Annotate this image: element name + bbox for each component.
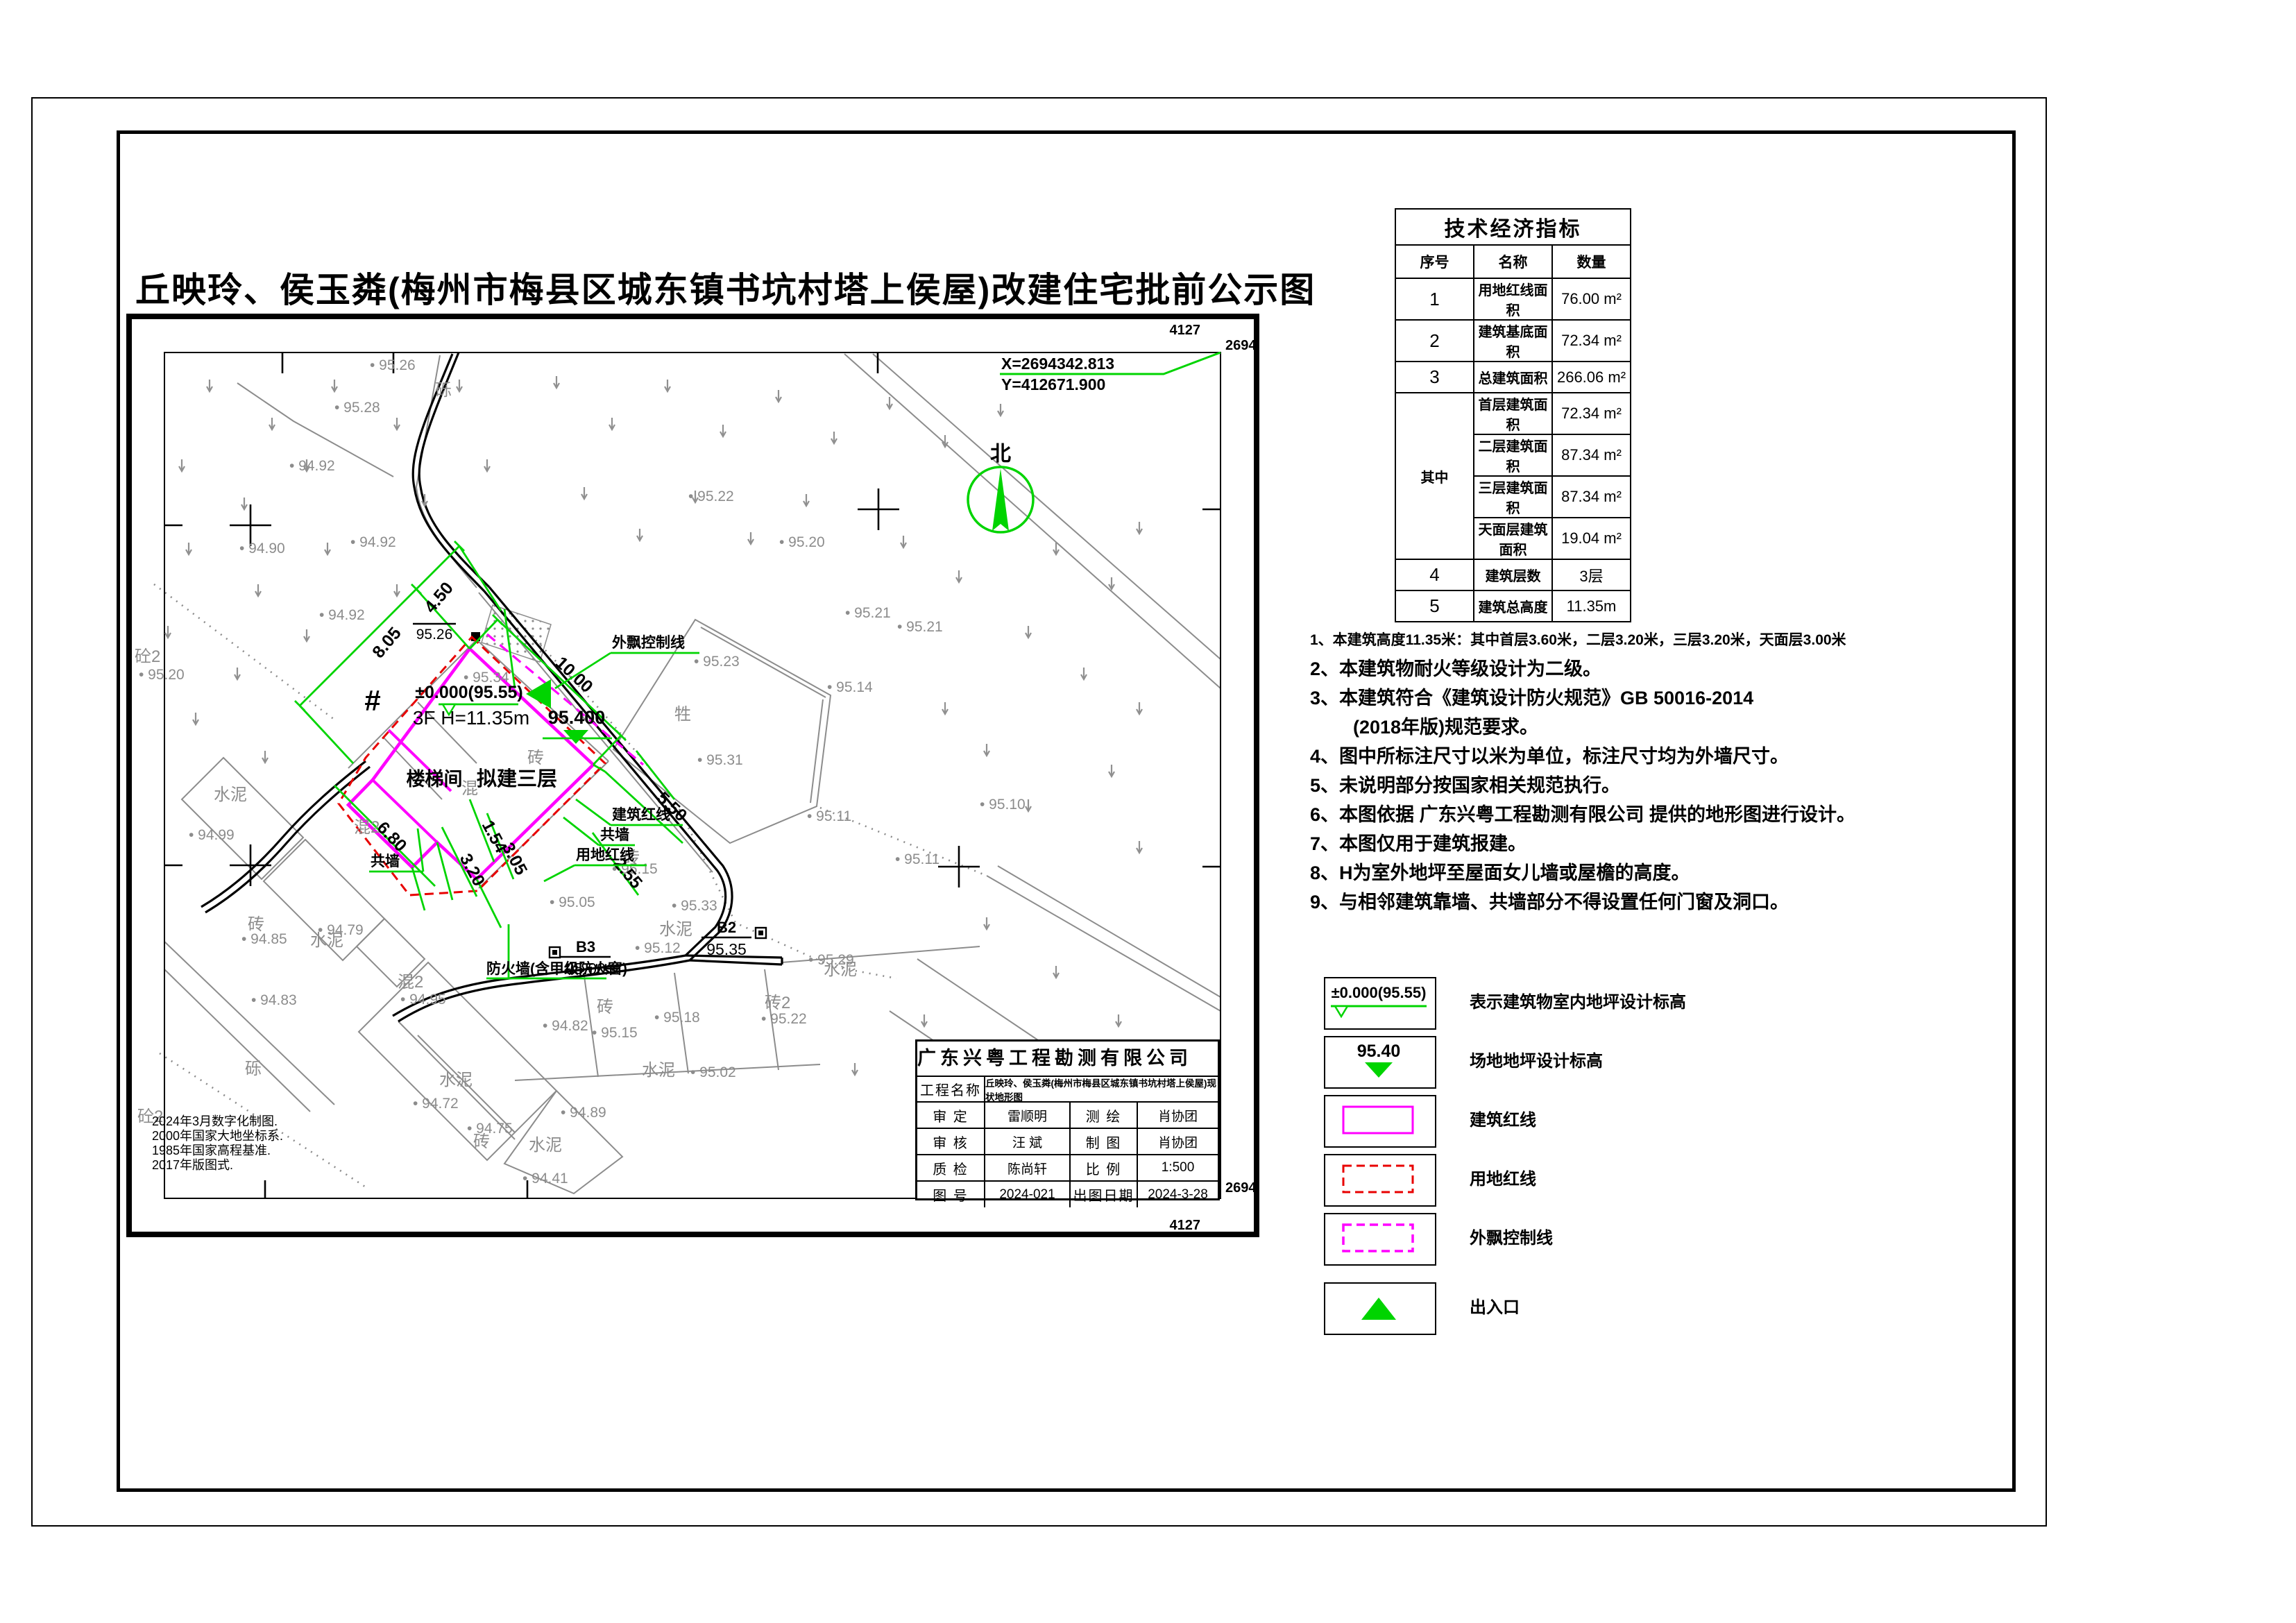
row-qty: 3层: [1552, 559, 1631, 590]
grass-symbol-icon: [921, 1014, 927, 1026]
grass-symbol-icon: [998, 404, 1003, 416]
field-label: 比 例: [1069, 1155, 1137, 1180]
field-label: 测 绘: [1069, 1103, 1137, 1128]
building-label: 拟建三层: [477, 767, 557, 790]
surface-label: 水泥: [310, 931, 343, 950]
coord-y-label: Y=412671.900: [1001, 375, 1105, 393]
grass-symbol-icon: [304, 629, 309, 641]
grass-symbol-icon: [984, 917, 989, 929]
surface-label: 水泥: [824, 960, 857, 979]
grass-symbol-icon: [942, 702, 948, 714]
row-number: 2: [1395, 320, 1474, 362]
field-value: 汪 斌: [984, 1129, 1069, 1154]
note-line: 5、未说明部分按国家相关规范执行。: [1310, 771, 1823, 800]
svg-text:±0.000(95.55): ±0.000(95.55): [1332, 984, 1427, 1001]
row-qty: 266.06 m²: [1552, 362, 1631, 393]
grass-symbol-icon: [901, 536, 906, 547]
legend-symbol-building-redline-icon: [1324, 1095, 1436, 1148]
benchmark-name: B3: [576, 938, 595, 955]
surface-label: 砖: [527, 749, 544, 767]
grass-symbol-icon: [803, 494, 809, 506]
leader-line: [418, 829, 423, 872]
indicator-table: 技术经济指标序号名称数量1用地红线面积76.00 m²2建筑基底面积72.34 …: [1395, 208, 1631, 622]
field-label: 图 号: [917, 1182, 984, 1207]
grass-symbol-icon: [1026, 626, 1031, 638]
building-label: ±0.000(95.55): [415, 683, 523, 702]
spot-elevation: • 95.15: [592, 1025, 638, 1041]
legend-label: 建筑红线: [1470, 1095, 1536, 1146]
row-qty: 87.34 m²: [1552, 476, 1631, 518]
field-value: 肖协团: [1137, 1103, 1218, 1128]
field-value: 2024-021: [984, 1182, 1069, 1207]
spot-elevation: • 95.28: [334, 400, 380, 416]
note-line: 4、图中所标注尺寸以米为单位，标注尺寸均为外墙尺寸。: [1310, 742, 1823, 771]
grass-symbol-icon: [1026, 799, 1031, 811]
row-number: 3: [1395, 362, 1474, 393]
field-label: 制 图: [1069, 1129, 1137, 1154]
benchmark-name: B2: [717, 919, 736, 936]
grass-symbol-icon: [720, 425, 726, 436]
grass-symbol-icon: [1137, 841, 1142, 853]
north-arrow-icon: 北: [968, 443, 1033, 532]
grass-symbol-icon: [852, 1063, 858, 1075]
grid-corner-label: 2694.3: [1225, 1180, 1259, 1196]
row-number: 4: [1395, 559, 1474, 590]
spot-elevation: • 95.20: [139, 667, 185, 683]
grass-symbol-icon: [193, 713, 198, 724]
group-cell: 其中: [1395, 393, 1474, 559]
building-label: 3F H=11.35m: [413, 707, 529, 729]
row-number: 5: [1395, 590, 1474, 622]
surface-label: 水泥: [214, 785, 247, 804]
spot-elevation: • 94.92: [350, 534, 396, 550]
survey-note-line: 1985年国家高程基准.: [152, 1144, 271, 1157]
coord-x-label: X=2694342.813: [1001, 355, 1114, 373]
legend-label: 场地地坪设计标高: [1470, 1036, 1603, 1087]
col-header: 数量: [1552, 245, 1631, 278]
grass-symbol-icon: [394, 418, 400, 430]
legend-symbol-overhang-line-icon: [1324, 1213, 1436, 1266]
row-name: 首层建筑面积: [1474, 393, 1552, 434]
note-line: 7、本图仅用于建筑报建。: [1310, 829, 1823, 858]
title-block-row: 图 号2024-021出图日期2024-3-28: [917, 1180, 1218, 1207]
grid-corner-label: 2694.3: [1225, 338, 1259, 353]
leader-line: [576, 799, 611, 825]
indicator-row: 2建筑基底面积72.34 m²: [1395, 320, 1631, 362]
spot-elevation: • 94.99: [189, 827, 235, 843]
leader-label: 外飘控制线: [612, 634, 685, 651]
grass-symbol-icon: [484, 459, 490, 471]
grass-symbol-icon: [325, 543, 330, 554]
spot-elevation: • 94.92: [289, 458, 335, 474]
field-value: 2024-3-28: [1137, 1182, 1218, 1207]
surface-label: 砾: [245, 1060, 262, 1078]
grass-symbol-icon: [1081, 668, 1087, 679]
field-label: 审 定: [917, 1103, 984, 1128]
spot-elevation: • 95.26: [370, 357, 416, 373]
spot-elevation: • 95.10: [980, 797, 1026, 813]
row-name: 总建筑面积: [1474, 362, 1552, 393]
surface-label: 混2: [398, 973, 423, 992]
building-label: #: [364, 684, 380, 717]
note-line: 1、本建筑高度11.35米：其中首层3.60米，二层3.20米，三层3.20米，…: [1310, 627, 1823, 654]
field-label: 审 核: [917, 1129, 984, 1154]
page: { "title": "丘映玲、侯玉粦(梅州市梅县区城东镇书坑村塔上侯屋)改建住…: [0, 0, 2296, 1623]
grass-symbol-icon: [186, 543, 192, 554]
legend-symbol-entrance-icon: [1324, 1282, 1436, 1335]
title-block: 广东兴粤工程勘测有限公司 工程名称 丘映玲、侯玉粦(梅州市梅县区城东镇书坑村塔上…: [915, 1039, 1220, 1200]
field-label: 质 检: [917, 1155, 984, 1180]
row-qty: 72.34 m²: [1552, 320, 1631, 362]
row-name: 建筑层数: [1474, 559, 1552, 590]
dimension-label: 8.05: [368, 624, 405, 662]
building-label: 楼梯间: [407, 769, 463, 790]
row-name: 天面层建筑面积: [1474, 518, 1552, 559]
svg-text:北: 北: [990, 443, 1011, 466]
grass-symbol-icon: [984, 744, 989, 756]
benchmark-value: 95.35: [706, 940, 747, 958]
legend-symbol-indoor-level-icon: ±0.000(95.55): [1324, 977, 1436, 1030]
indicator-row: 3总建筑面积266.06 m²: [1395, 362, 1631, 393]
field-value: 1:500: [1137, 1155, 1218, 1180]
benchmark-square-dot: [552, 950, 557, 955]
field-label: 出图日期: [1069, 1182, 1137, 1207]
spot-elevation: • 94.92: [319, 607, 365, 623]
svg-text:95.40: 95.40: [1357, 1042, 1401, 1061]
notes-panel: 1、本建筑高度11.35米：其中首层3.60米，二层3.20米，三层3.20米，…: [1310, 627, 1823, 917]
title-block-row: 审 定雷顺明测 绘肖协团: [917, 1101, 1218, 1128]
grass-symbols: [165, 376, 1142, 1075]
grass-symbol-icon: [956, 570, 962, 582]
building-label: 95.26: [416, 627, 453, 643]
note-line: 3、本建筑符合《建筑设计防火规范》GB 50016-2014: [1310, 683, 1823, 713]
grass-symbol-icon: [748, 532, 754, 544]
legend-label: 出入口: [1470, 1282, 1520, 1334]
field-value: 肖协团: [1137, 1129, 1218, 1154]
note-line: (2018年版)规范要求。: [1310, 713, 1823, 742]
legend-label: 表示建筑物室内地坪设计标高: [1470, 977, 1686, 1028]
col-header: 序号: [1395, 245, 1474, 278]
spot-elevation: • 94.41: [522, 1171, 568, 1187]
row-name: 建筑基底面积: [1474, 320, 1552, 362]
indicator-row: 5建筑总高度11.35m: [1395, 590, 1631, 622]
surface-label: 水泥: [439, 1071, 473, 1089]
grass-symbol-icon: [831, 432, 837, 443]
grass-symbol-icon: [637, 529, 643, 541]
grass-symbol-icon: [269, 418, 275, 430]
company-name: 广东兴粤工程勘测有限公司: [917, 1042, 1218, 1076]
indicator-row: 1用地红线面积76.00 m²: [1395, 278, 1631, 320]
grass-symbol-icon: [255, 584, 261, 596]
grid-corner-label: 4127: [1170, 1218, 1201, 1233]
surface-label: 牲: [674, 705, 691, 724]
row-name: 二层建筑面积: [1474, 434, 1552, 476]
benchmark-value: 95.00: [566, 960, 606, 978]
spot-elevation: • 95.12: [635, 940, 681, 956]
row-name: 用地红线面积: [1474, 278, 1552, 320]
benchmark-square-dot: [758, 931, 763, 935]
drawing-title: 丘映玲、侯玉粦(梅州市梅县区城东镇书坑村塔上侯屋)改建住宅批前公示图: [135, 262, 1316, 312]
surface-label: 水泥: [529, 1136, 562, 1155]
row-qty: 87.34 m²: [1552, 434, 1631, 476]
spot-elevation: • 95.05: [550, 894, 595, 910]
spot-elevation: • 95.31: [697, 752, 743, 768]
survey-note-line: 2000年国家大地坐标系.: [152, 1129, 283, 1143]
surface-label: 砖: [248, 915, 264, 934]
surface-label: 砖: [597, 998, 613, 1017]
grass-symbol-icon: [457, 380, 462, 391]
leader-label: 共墙: [371, 853, 400, 869]
grass-symbol-icon: [262, 751, 268, 763]
firewall-label: 防火墙(含甲级防火窗): [486, 960, 627, 977]
spot-elevation: • 95.11: [895, 851, 939, 867]
spot-elevation: • 95.02: [690, 1064, 736, 1080]
survey-note-line: 2024年3月数字化制图.: [152, 1114, 278, 1128]
note-line: 8、H为室外地坪至屋面女儿墙或屋檐的高度。: [1310, 858, 1823, 887]
row-qty: 72.34 m²: [1552, 393, 1631, 434]
spot-elevation: • 94.72: [413, 1096, 459, 1112]
spot-elevation: • 95.11: [807, 808, 851, 824]
leader-line: [544, 865, 575, 881]
grass-symbol-icon: [1109, 577, 1114, 589]
spot-elevation: • 94.95: [400, 992, 446, 1008]
survey-note-line: 2017年版图式.: [152, 1158, 233, 1172]
row-number: 1: [1395, 278, 1474, 320]
surface-label: 砖2: [765, 994, 790, 1012]
dimension-label: 10.00: [552, 653, 597, 697]
grass-symbol-icon: [1137, 702, 1142, 714]
title-block-row: 质 检陈尚轩比 例1:500: [917, 1154, 1218, 1180]
surface-label: 砼2: [135, 647, 160, 666]
spot-elevation: • 94.82: [543, 1018, 588, 1034]
grass-symbol-icon: [887, 397, 892, 409]
grass-symbol-icon: [394, 584, 400, 596]
grass-symbol-icon: [207, 380, 212, 391]
leader-label: 共墙: [600, 826, 629, 843]
leader-line: [563, 817, 599, 845]
row-name: 建筑总高度: [1474, 590, 1552, 622]
indicator-table-title: 技术经济指标: [1395, 209, 1631, 245]
row-qty: 11.35m: [1552, 590, 1631, 622]
building-label: 95.400: [548, 707, 606, 728]
surface-label: 水泥: [659, 920, 692, 939]
row-qty: 19.04 m²: [1552, 518, 1631, 559]
dimension-label: 3.05: [498, 840, 532, 878]
legend-label: 用地红线: [1470, 1154, 1536, 1205]
field-value: 陈尚轩: [984, 1155, 1069, 1180]
spot-elevation: • 95.21: [897, 619, 943, 635]
spot-elevation: • 95.23: [694, 654, 740, 670]
spot-elevation: • 95.20: [779, 534, 825, 550]
legend-symbol-land-redline-icon: [1324, 1154, 1436, 1207]
note-line: 6、本图依据 广东兴粤工程勘测有限公司 提供的地形图进行设计。: [1310, 800, 1823, 829]
spot-elevation: • 95.33: [672, 898, 717, 914]
indicator-row: 其中首层建筑面积72.34 m²: [1395, 393, 1631, 434]
legend-label: 外飘控制线: [1470, 1213, 1553, 1264]
grass-symbol-icon: [165, 626, 171, 638]
spot-elevation: • 95.22: [761, 1011, 807, 1027]
title-block-row: 审 核汪 斌制 图肖协团: [917, 1128, 1218, 1154]
spot-elevation: • 95.14: [827, 679, 873, 695]
spot-elevation: • 95.21: [845, 605, 891, 621]
col-header: 名称: [1474, 245, 1552, 278]
note-line: 2、本建筑物耐火等级设计为二级。: [1310, 654, 1823, 683]
spot-elevation: • 94.90: [239, 541, 285, 556]
row-name: 三层建筑面积: [1474, 476, 1552, 518]
project-name-value: 丘映玲、侯玉粦(梅州市梅县区城东镇书坑村塔上侯屋)现状地形图: [984, 1077, 1218, 1101]
leader-label: 用地红线: [576, 847, 634, 863]
field-value: 雷顺明: [984, 1103, 1069, 1128]
grass-symbol-icon: [581, 487, 587, 499]
title-block-fields: 审 定雷顺明测 绘肖协团审 核汪 斌制 图肖协团质 检陈尚轩比 例1:500图 …: [917, 1101, 1218, 1207]
grass-symbol-icon: [241, 498, 247, 509]
grass-symbol-icon: [1116, 1014, 1121, 1026]
grass-symbol-icon: [332, 380, 337, 391]
surface-label: 砖: [473, 1132, 490, 1151]
spot-elevation: • 94.83: [251, 992, 297, 1008]
grass-symbol-icon: [609, 418, 615, 430]
grass-symbol-icon: [1053, 966, 1059, 978]
leader-label: 建筑红线: [612, 806, 670, 823]
grass-symbol-icon: [554, 376, 559, 388]
grass-symbol-icon: [776, 390, 781, 402]
indicator-row: 4建筑层数3层: [1395, 559, 1631, 590]
grass-symbol-icon: [665, 380, 670, 391]
dimension-label: 4.50: [420, 579, 457, 617]
surface-label: 水泥: [642, 1061, 675, 1080]
grass-symbol-icon: [1137, 522, 1142, 534]
project-name-label: 工程名称: [917, 1077, 984, 1101]
spot-elevation: • 94.89: [561, 1105, 606, 1121]
grass-symbol-icon: [179, 459, 185, 471]
grid-corner-label: 4127: [1170, 323, 1201, 338]
grass-symbol-icon: [235, 668, 240, 679]
row-qty: 76.00 m²: [1552, 278, 1631, 320]
note-line: 9、与相邻建筑靠墙、共墙部分不得设置任何门窗及洞口。: [1310, 887, 1823, 917]
legend-symbol-site-level-icon: 95.40: [1324, 1036, 1436, 1089]
grass-symbol-icon: [1109, 765, 1114, 776]
spot-elevation: • 95.18: [654, 1010, 700, 1026]
surface-label: 砾: [435, 381, 452, 400]
surface-label: 混: [461, 779, 478, 798]
